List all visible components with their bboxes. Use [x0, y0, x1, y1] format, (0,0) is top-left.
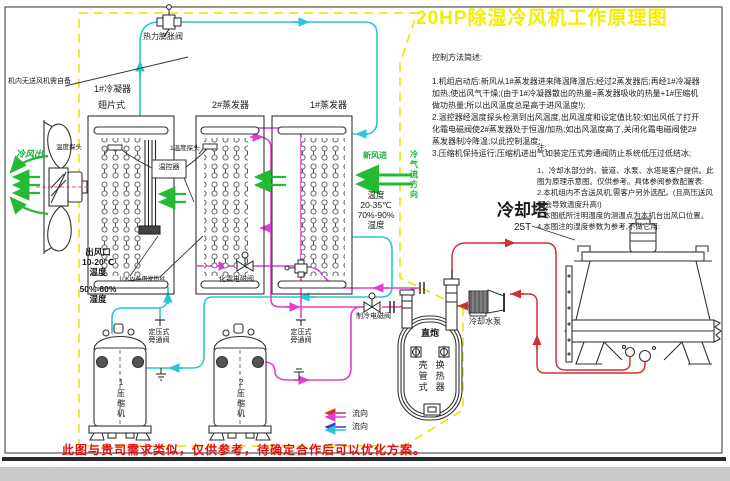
hx-left-tube	[400, 290, 414, 328]
cooling-tower	[565, 219, 721, 364]
cooling-solenoid-symbol	[364, 293, 380, 312]
inlet-conditions-label: 温度 20-35℃ 70%-90% 湿度	[352, 190, 400, 230]
cooling-valve-label: 制冷电磁阀	[356, 313, 391, 321]
thermostat-label: 温控器	[153, 164, 185, 172]
condenser1-label: 1#冷凝器	[94, 84, 131, 95]
side-notes-heading: 注:	[537, 142, 717, 153]
compressor1-label: 1压缩机	[116, 378, 125, 430]
side-notes: 注: 1、冷却水部分的、管道、水泵、水塔是客户提供。此图为原理示意图。仅供参考。…	[537, 131, 717, 232]
evaporator2-unit	[196, 116, 264, 294]
cooling-tower-label: 冷却塔	[497, 201, 548, 221]
cold-air-flow-direction-label: 冷气流方向	[409, 150, 418, 218]
expansion-valve2-symbol	[285, 260, 307, 277]
cyan-pipes	[112, 22, 392, 368]
compressor2-label: 2压缩机	[236, 378, 245, 430]
axial-fan	[36, 120, 90, 254]
temp-probe-label: 温度探头	[56, 144, 82, 152]
diagram-canvas: 20HP除湿冷风机工作原理图 控制方法简述: 1.机组启动后:新风从1#蒸发器进…	[0, 0, 730, 481]
hx-name-col1-label: 壳管式	[417, 360, 428, 404]
legend-flow-blue-label: 流向	[352, 422, 368, 431]
water-pump	[469, 290, 504, 316]
page-title: 20HP除湿冷风机工作原理图	[416, 8, 668, 30]
outlet-humidity-label: 50%-60% 湿度	[74, 284, 122, 304]
tower-inlet-strip	[566, 266, 572, 362]
defrost-valve-label: 化霜电磁阀	[219, 276, 254, 284]
air-outlet-label: 出风口 10-20℃ 温度	[74, 247, 122, 277]
tower-capacity-label: 25T	[514, 222, 531, 234]
thermal-expansion-valve-label: 热力膨胀阀	[143, 32, 183, 41]
evaporator2-label: 2#蒸发器	[212, 100, 249, 111]
hx-type-label: 直炮	[416, 328, 444, 339]
heat-exchanger	[398, 270, 462, 420]
backup-heater-label: 10KW备用发热丝	[119, 277, 165, 284]
fin-type-label: 翅片式	[98, 100, 125, 111]
evaporator1-label: 1#蒸发器	[310, 100, 347, 111]
no-fan-note: 机内无送风机需自备	[8, 78, 71, 86]
cold-air-out-arrows	[11, 156, 48, 214]
control-notes-heading: 控制方法简述:	[432, 52, 704, 64]
side-notes-body: 1、冷却水部分的、管道、水泵、水塔是客户提供。此图为原理示意图。仅供参考。具体参…	[537, 166, 714, 231]
evaporator1-unit	[272, 116, 352, 294]
cold-air-out-label: 冷风出	[16, 149, 43, 160]
legend-flow-red-label: 流向	[352, 409, 368, 418]
fresh-air-in-label: 新风进	[363, 151, 387, 160]
hx-name-col2-label: 换热器	[434, 360, 445, 404]
water-pump-label: 冷却水泵	[469, 317, 501, 326]
hx-right-tube	[444, 270, 459, 330]
bypass-valve2-label: 定压式 旁通阀	[286, 329, 316, 346]
hx-flange-right	[439, 346, 449, 358]
flow-legend-arrows	[326, 413, 346, 430]
bypass-valve1-label: 定压式 旁通阀	[144, 329, 174, 346]
temp-probe1-label: 1温度探头	[170, 145, 200, 153]
footer-note: 此图与贵司需求类似，仅供参考，待确定合作后可以优化方案。	[62, 443, 426, 457]
hx-flange-left	[411, 346, 421, 358]
bypass-valve1-symbol	[155, 320, 165, 326]
bypass-valve2-symbol	[296, 320, 306, 326]
